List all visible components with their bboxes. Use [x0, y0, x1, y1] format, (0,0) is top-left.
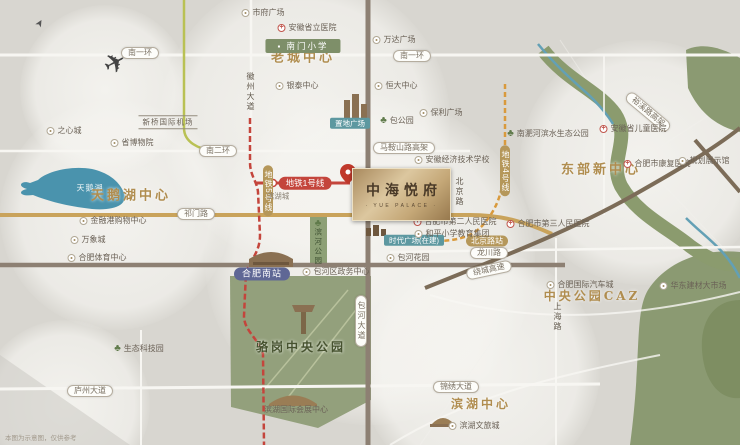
tree-icon: ♣ — [315, 219, 322, 229]
poi-label: 合肥市第三人民医院 — [518, 220, 590, 228]
hospital-icon — [624, 160, 632, 168]
map-disclaimer: 本图为示意图，仅供参考 — [5, 432, 77, 442]
poi-baoli-plaza: 保利广场 — [420, 109, 463, 117]
label-binhu-center: 滨湖中心 — [451, 398, 511, 410]
poi-provincial-hospital: 安徽省立医院 — [278, 24, 337, 32]
road-nanerhuan: 南二环 — [199, 145, 237, 157]
poi-mixc: 万象城 — [71, 236, 106, 244]
poi-shifu-square: 市府广场 — [242, 9, 285, 17]
poi-label: 保利广场 — [431, 109, 463, 117]
metro-line1-pill: 地铁1号线 — [279, 177, 332, 190]
poi-hengda-center: 恒大中心 — [375, 82, 418, 90]
poi-dot-icon — [420, 109, 428, 117]
metro-line4-pill: 地铁4号线 — [500, 145, 510, 196]
poi-dot-icon — [449, 422, 457, 430]
label-binhucheng: 滨湖城 — [267, 192, 290, 200]
road-longchuan: 龙川路 — [470, 247, 508, 259]
poi-third-hospital: 合肥市第三人民医院 — [507, 220, 590, 228]
poi-provincial-museum: 省博物院 — [111, 139, 154, 147]
label-tianehu-center: 天鹅湖中心 — [91, 190, 171, 203]
poi-small-park-tree: ♣ — [315, 219, 322, 229]
project-name-en: · YUE PALACE · — [365, 203, 437, 209]
poi-dot-icon — [71, 236, 79, 244]
pill-zhidi-plaza: 置地广场 — [330, 118, 370, 129]
road-raocheng-expressway: 绕城高速 — [465, 259, 512, 280]
poi-label: 安徽省立医院 — [289, 24, 337, 32]
poi-label: 滨湖文旅城 — [460, 422, 500, 430]
poi-label: 万达广场 — [384, 36, 416, 44]
poi-label: 包河区政务中心 — [314, 268, 370, 276]
poi-dot-icon — [303, 268, 311, 276]
poi-dot-icon — [547, 281, 555, 289]
poi-children-hospital: 安徽省儿童医院 — [600, 125, 667, 133]
poi-label: 安徽省儿童医院 — [611, 125, 667, 133]
poi-label: 滨湖国际会展中心 — [264, 406, 328, 414]
poi-sports-center: 合肥体育中心 — [68, 254, 127, 262]
poi-dot-icon — [415, 230, 423, 238]
label-xinqiao-airport: 新桥国际机场 — [139, 115, 198, 129]
tree-icon: ♣ — [507, 129, 514, 139]
poi-baogong-park: ♣包公园 — [380, 116, 414, 126]
poi-building-materials-market: 华东建材大市场 — [660, 282, 727, 290]
poi-dot-icon — [373, 36, 381, 44]
poi-label: 安徽经济技术学校 — [426, 156, 490, 164]
road-qimen: 祁门路 — [177, 208, 215, 220]
poi-economic-tech-school: 安徽经济技术学校 — [415, 156, 490, 164]
poi-label: 和平小学教育集团 — [426, 230, 490, 238]
poi-heping-primary: 和平小学教育集团 — [415, 230, 490, 238]
label-luogang-park: 骆岗中央公园 — [256, 341, 346, 353]
poi-dot-icon — [387, 254, 395, 262]
poi-financial-port-mall: 金融港购物中心 — [80, 217, 147, 225]
poi-auto-city: 合肥国际汽车城 — [547, 281, 614, 289]
label-old-town-center: 老城中心 — [271, 52, 335, 65]
poi-label: 华东建材大市场 — [671, 282, 727, 290]
poi-exhibition-center: 滨湖国际会展中心 — [264, 406, 328, 414]
label-central-park-caz: 中央公园CAZ — [544, 290, 641, 302]
poi-label: 万象城 — [82, 236, 106, 244]
tree-icon: ♣ — [380, 116, 387, 126]
poi-dot-icon — [276, 82, 284, 90]
road-baohe-avenue: 包河大道 — [355, 295, 367, 347]
poi-label: 银泰中心 — [287, 82, 319, 90]
poi-dot-icon — [47, 127, 55, 135]
poi-nanfeihe-eco-park: ♣南淝河滨水生态公园 — [507, 129, 589, 139]
poi-label: 合肥体育中心 — [79, 254, 127, 262]
poi-label: 包河花园 — [398, 254, 430, 262]
poi-dot-icon — [80, 217, 88, 225]
bar-nanmen-primary-school: 南门小学 — [265, 39, 340, 53]
poi-dot-icon — [68, 254, 76, 262]
road-maanshan-viaduct: 马鞍山路高架 — [373, 142, 435, 154]
project-plaque: 中海悦府 · YUE PALACE · — [352, 168, 451, 221]
tree-icon: ♣ — [114, 344, 121, 354]
poi-planning-hall: 规划展示馆 — [679, 157, 730, 165]
hospital-icon — [278, 24, 286, 32]
poi-zhixincheng: 之心城 — [47, 127, 82, 135]
poi-baohe-garden: 包河花园 — [387, 254, 430, 262]
poi-label: 南淝河滨水生态公园 — [517, 130, 589, 138]
project-name-cn: 中海悦府 — [361, 180, 442, 200]
label-binhe-park: 滨河公园 — [314, 228, 322, 266]
road-jinxiu-avenue: 锦绣大道 — [433, 381, 479, 393]
poi-label: 之心城 — [58, 127, 82, 135]
poi-dot-icon — [660, 282, 668, 290]
poi-dot-icon — [242, 9, 250, 17]
road-nanyihuan-east: 南一环 — [393, 50, 431, 62]
poi-dot-icon — [375, 82, 383, 90]
poi-yintai-center: 银泰中心 — [276, 82, 319, 90]
poi-dot-icon — [679, 157, 687, 165]
poi-label: 合肥国际汽车城 — [558, 281, 614, 289]
poi-label: 省博物院 — [122, 139, 154, 147]
poi-binhu-resort: 滨湖文旅城 — [449, 422, 500, 430]
poi-label: 包公园 — [390, 117, 414, 125]
poi-dot-icon — [111, 139, 119, 147]
poi-eco-tech-park: ♣生态科技园 — [114, 344, 164, 354]
poi-dot-icon — [415, 156, 423, 164]
poi-wanda-plaza: 万达广场 — [373, 36, 416, 44]
city-location-map: ✈ ➤ 天鹅湖 天鹅湖中心老城中心东部新中心中央公园CAZ滨湖中心骆岗中央公园南… — [0, 0, 740, 445]
hospital-icon — [600, 125, 608, 133]
road-huizhou-avenue: 徽州大道 — [246, 72, 254, 112]
hospital-icon — [507, 220, 515, 228]
poi-label: 规划展示馆 — [690, 157, 730, 165]
road-luzhou-avenue: 庐州大道 — [67, 385, 113, 397]
labels-layer: 天鹅湖中心老城中心东部新中心中央公园CAZ滨湖中心骆岗中央公园南一环南一环南二环… — [0, 0, 740, 445]
poi-label: 恒大中心 — [386, 82, 418, 90]
road-nanyihuan-west: 南一环 — [121, 47, 159, 59]
poi-label: 生态科技园 — [124, 345, 164, 353]
poi-baohe-gov-center: 包河区政务中心 — [303, 268, 370, 276]
road-beijing: 北京路 — [455, 177, 463, 207]
road-shanghai: 上海路 — [553, 302, 561, 332]
poi-label: 市府广场 — [253, 9, 285, 17]
poi-label: 金融港购物中心 — [91, 217, 147, 225]
hefei-south-station-pill: 合肥南站 — [234, 268, 290, 281]
